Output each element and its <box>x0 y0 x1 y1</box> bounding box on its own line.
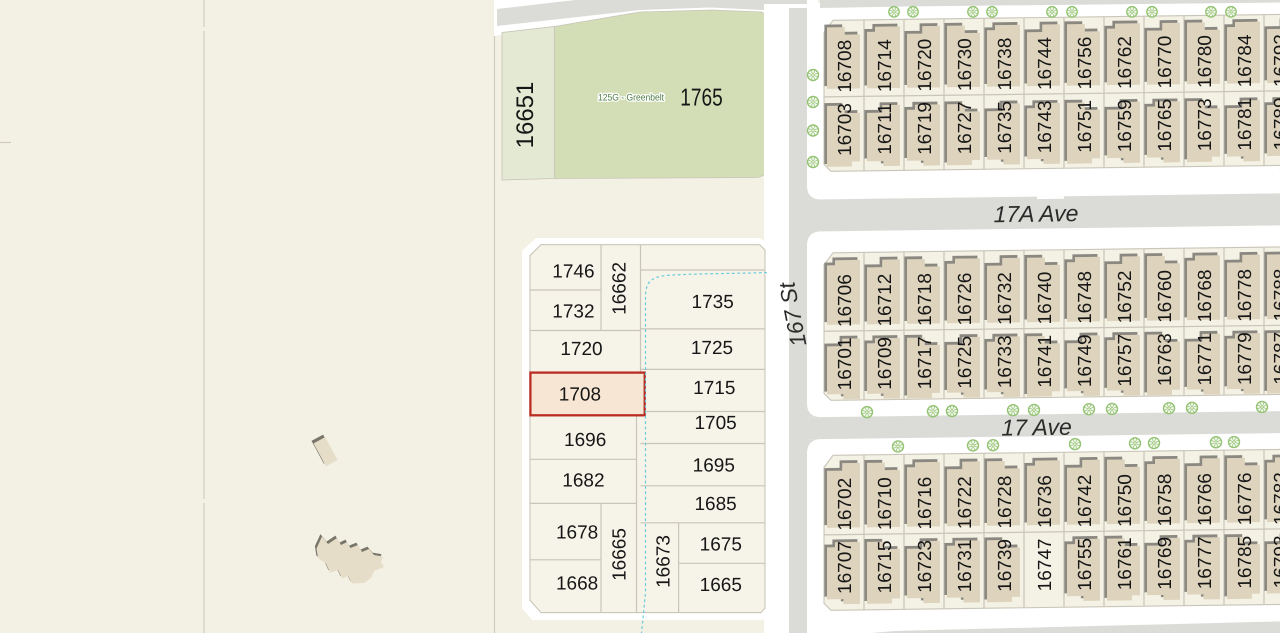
svg-text:16735: 16735 <box>995 101 1016 154</box>
svg-text:16714: 16714 <box>875 39 896 93</box>
svg-text:1708: 1708 <box>559 384 601 405</box>
svg-text:16758: 16758 <box>1155 473 1176 526</box>
svg-text:16784: 16784 <box>1235 34 1256 88</box>
svg-text:16710: 16710 <box>875 477 896 530</box>
svg-text:16706: 16706 <box>835 274 856 327</box>
svg-text:16741: 16741 <box>1035 335 1056 388</box>
svg-text:1735: 1735 <box>692 292 734 313</box>
svg-text:16662: 16662 <box>609 262 630 315</box>
svg-text:16782: 16782 <box>1271 472 1280 525</box>
svg-text:16665: 16665 <box>609 528 630 581</box>
svg-text:16759: 16759 <box>1115 99 1136 152</box>
svg-text:17A Ave: 17A Ave <box>994 200 1079 227</box>
svg-text:16771: 16771 <box>1195 333 1216 386</box>
svg-text:1675: 1675 <box>700 535 742 556</box>
svg-text:16738: 16738 <box>995 38 1016 91</box>
svg-text:125G - Greenbelt: 125G - Greenbelt <box>598 93 664 104</box>
svg-text:16739: 16739 <box>995 539 1016 592</box>
svg-text:16757: 16757 <box>1115 334 1136 387</box>
svg-text:16766: 16766 <box>1195 473 1216 526</box>
svg-text:16785: 16785 <box>1235 536 1256 589</box>
svg-text:16792: 16792 <box>1271 34 1280 87</box>
svg-text:16743: 16743 <box>1035 100 1056 153</box>
svg-text:1705: 1705 <box>694 413 736 434</box>
svg-text:1715: 1715 <box>693 378 735 399</box>
svg-text:16702: 16702 <box>835 478 856 531</box>
svg-text:16752: 16752 <box>1115 270 1136 323</box>
svg-text:16742: 16742 <box>1075 474 1096 527</box>
svg-text:1746: 1746 <box>552 261 594 282</box>
svg-text:16744: 16744 <box>1035 37 1056 91</box>
svg-text:16716: 16716 <box>915 477 936 530</box>
svg-text:1732: 1732 <box>552 302 594 323</box>
svg-text:16747: 16747 <box>1035 538 1056 591</box>
svg-text:16761: 16761 <box>1115 537 1136 590</box>
svg-text:16762: 16762 <box>1115 36 1136 89</box>
svg-text:16749: 16749 <box>1075 334 1096 387</box>
svg-text:16773: 16773 <box>1195 98 1216 151</box>
svg-text:16717: 16717 <box>915 336 936 389</box>
svg-text:16651: 16651 <box>512 82 539 149</box>
svg-text:16727: 16727 <box>955 101 976 154</box>
svg-text:16776: 16776 <box>1235 472 1256 525</box>
svg-text:16701: 16701 <box>835 337 856 390</box>
svg-text:16730: 16730 <box>955 38 976 91</box>
svg-text:1678: 1678 <box>556 522 598 543</box>
svg-text:16793: 16793 <box>1271 535 1280 588</box>
svg-text:16763: 16763 <box>1155 333 1176 386</box>
svg-text:16778: 16778 <box>1235 269 1256 322</box>
svg-text:16748: 16748 <box>1075 271 1096 324</box>
svg-text:16725: 16725 <box>955 336 976 389</box>
svg-text:16779: 16779 <box>1235 332 1256 385</box>
svg-text:16787: 16787 <box>1271 332 1280 385</box>
svg-text:16755: 16755 <box>1075 538 1096 591</box>
svg-text:16708: 16708 <box>835 40 856 93</box>
svg-text:16709: 16709 <box>875 337 896 390</box>
svg-text:16788: 16788 <box>1271 268 1280 321</box>
svg-text:16770: 16770 <box>1155 35 1176 88</box>
svg-text:16726: 16726 <box>955 272 976 325</box>
svg-text:16711: 16711 <box>875 103 896 155</box>
svg-text:16765: 16765 <box>1155 99 1176 152</box>
svg-text:16707: 16707 <box>835 541 856 594</box>
svg-text:16723: 16723 <box>915 540 936 593</box>
svg-text:1682: 1682 <box>562 470 604 491</box>
svg-text:16733: 16733 <box>995 335 1016 388</box>
svg-text:16722: 16722 <box>955 476 976 529</box>
svg-text:16732: 16732 <box>995 272 1016 325</box>
svg-text:16719: 16719 <box>915 102 936 155</box>
svg-text:16736: 16736 <box>1035 475 1056 528</box>
svg-text:16740: 16740 <box>1035 271 1056 324</box>
svg-text:16780: 16780 <box>1195 35 1216 88</box>
svg-text:16712: 16712 <box>875 274 896 327</box>
svg-text:1720: 1720 <box>560 339 602 360</box>
svg-text:16751: 16751 <box>1075 100 1096 153</box>
svg-text:16715: 16715 <box>875 540 896 593</box>
svg-text:16750: 16750 <box>1115 474 1136 527</box>
svg-text:16781: 16781 <box>1235 98 1256 151</box>
svg-text:1695: 1695 <box>693 455 735 476</box>
svg-text:16777: 16777 <box>1195 536 1216 589</box>
svg-text:16728: 16728 <box>995 476 1016 529</box>
svg-text:1765: 1765 <box>680 84 723 111</box>
svg-text:16718: 16718 <box>915 273 936 326</box>
svg-text:16673: 16673 <box>653 535 674 588</box>
svg-text:16768: 16768 <box>1195 269 1216 322</box>
svg-text:16769: 16769 <box>1155 537 1176 590</box>
svg-text:1725: 1725 <box>691 338 733 359</box>
svg-text:1696: 1696 <box>564 430 606 451</box>
svg-text:16731: 16731 <box>955 539 976 592</box>
svg-text:1685: 1685 <box>694 494 736 515</box>
svg-text:16756: 16756 <box>1075 36 1096 89</box>
svg-text:16789: 16789 <box>1271 97 1280 150</box>
svg-text:17 Ave: 17 Ave <box>1001 414 1071 441</box>
svg-text:1665: 1665 <box>700 575 742 596</box>
svg-text:1668: 1668 <box>556 573 598 594</box>
svg-text:16703: 16703 <box>835 103 856 156</box>
svg-text:16760: 16760 <box>1155 270 1176 323</box>
svg-text:16720: 16720 <box>915 39 936 92</box>
